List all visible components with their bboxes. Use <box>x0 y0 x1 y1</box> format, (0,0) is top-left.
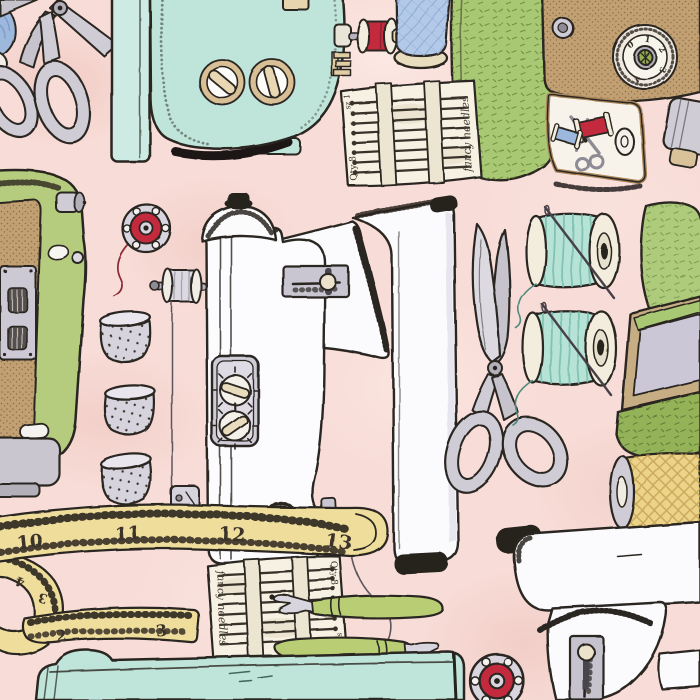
machine-dial-panel <box>212 356 258 449</box>
teal-machine-base-bottom <box>36 650 464 700</box>
green-machine-base <box>0 438 60 486</box>
machine-spool-pin <box>151 269 207 303</box>
green-machine-knob <box>56 192 86 212</box>
shears-top-left <box>0 0 114 150</box>
machine-slider-plate <box>283 266 349 297</box>
sewing-case-top-right: 0 1 2 3 4 <box>451 0 700 190</box>
aqua-thread-spool-2 <box>513 303 616 426</box>
red-metal-bobbin-bottom <box>470 654 524 700</box>
tape-number-10: 10 <box>15 530 44 555</box>
tape-end-number-3: 3 <box>155 620 168 640</box>
needle-packet-top: sz 1 Qty 8 fancy needles <box>341 79 481 188</box>
packet-qty-label: Qty 8 <box>349 156 360 181</box>
blue-thread-cone <box>395 0 450 68</box>
green-machine-small-knob <box>73 253 84 264</box>
machine-foot-bottom <box>394 552 449 575</box>
tan-bracket-icon <box>332 52 351 76</box>
shears-blade-sliver <box>0 0 38 16</box>
tape-end-number-2: 2 <box>55 627 67 647</box>
teal-machine-dial-1 <box>200 60 245 105</box>
teal-machine-dial-2 <box>250 60 295 105</box>
thimble-2 <box>103 382 156 436</box>
pattern-scene: 0 1 2 3 4 <box>0 0 700 700</box>
packet-size-label: sz 1 <box>343 94 353 109</box>
mini-white-spool <box>616 129 634 155</box>
white-sewing-machine-bottom-right <box>495 522 700 700</box>
red-metal-bobbin <box>122 204 170 252</box>
green-sewing-machine-left <box>0 170 86 497</box>
fabric-pattern-canvas: 0 1 2 3 4 <box>0 0 700 700</box>
tape-number-13: 13 <box>324 530 353 555</box>
green-sewing-box-right <box>616 202 700 458</box>
thimble-1 <box>99 310 150 362</box>
green-machine-foot-detail <box>19 423 48 440</box>
yellow-thread-spool <box>610 454 700 533</box>
green-machine-plate <box>0 266 36 360</box>
teal-sewing-machine-top <box>112 0 351 162</box>
ripper-handle <box>306 596 443 619</box>
teal-machine-tab <box>283 0 309 10</box>
green-machine-latch <box>48 245 68 259</box>
machine-br-bed-band <box>658 650 700 689</box>
shears-bow-right <box>24 54 99 150</box>
tape-number-12: 12 <box>219 524 246 547</box>
bobbin-thread <box>114 244 128 296</box>
thimble-3 <box>100 451 153 505</box>
case-dial: 0 1 2 3 4 <box>613 25 677 89</box>
case-gray-cylinder <box>660 97 700 171</box>
machine-dome <box>202 193 276 241</box>
tape-number-11: 11 <box>114 522 142 545</box>
case-shadow <box>556 184 640 190</box>
machine-br-slider-plate <box>570 636 603 700</box>
aqua-thread-spool <box>516 206 619 329</box>
machine-br-slab <box>513 522 700 610</box>
